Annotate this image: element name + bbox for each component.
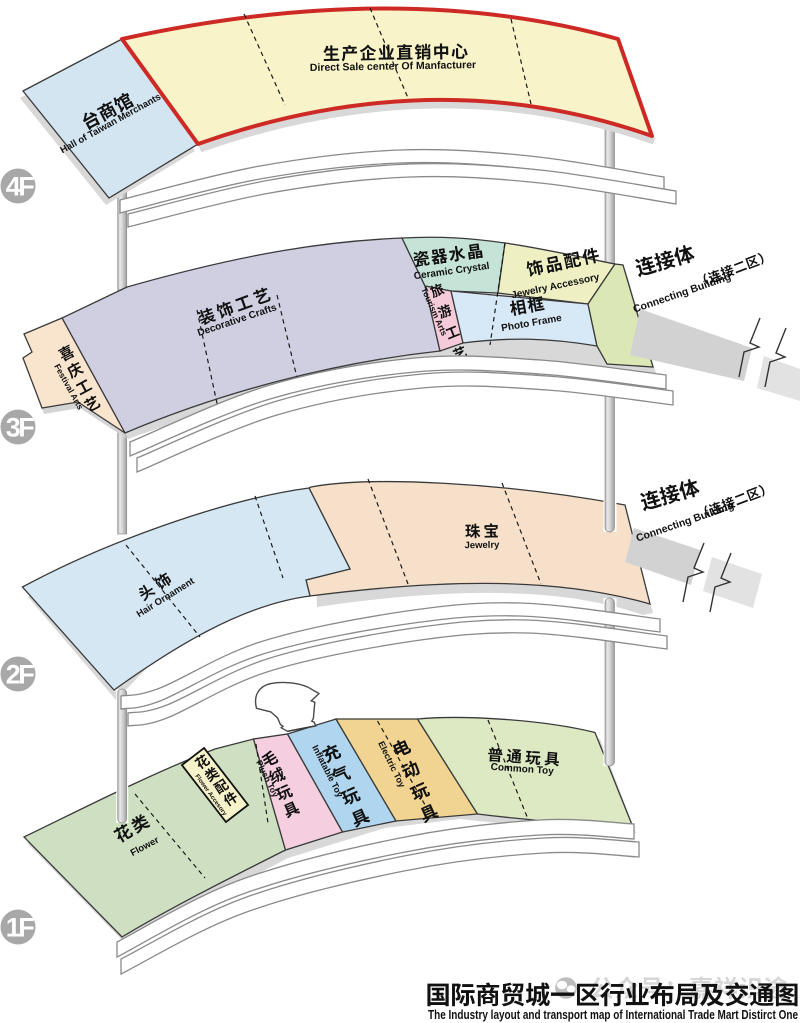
svg-text:1F: 1F (6, 913, 35, 943)
svg-text:3F: 3F (6, 413, 35, 443)
svg-text:2F: 2F (6, 660, 35, 690)
svg-text:Connecting Building: Connecting Building (635, 500, 736, 545)
svg-text:The Industry layout and transp: The Industry layout and transport map of… (428, 1007, 798, 1022)
svg-text:4F: 4F (6, 172, 35, 202)
svg-text:Jewelry: Jewelry (464, 540, 500, 552)
svg-text:Connecting Building: Connecting Building (632, 271, 733, 316)
